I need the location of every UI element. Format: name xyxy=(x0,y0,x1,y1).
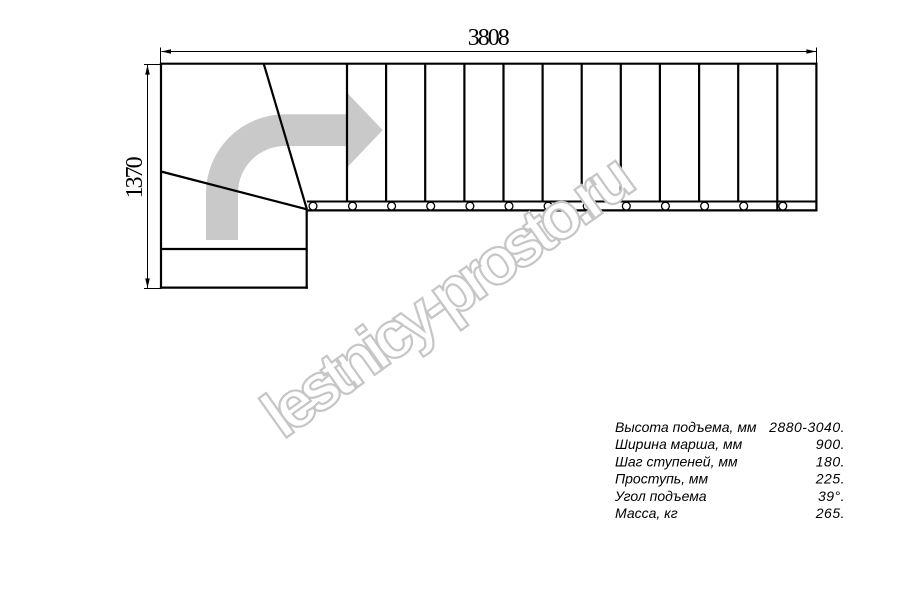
svg-text:180.: 180. xyxy=(816,453,845,469)
svg-text:265.: 265. xyxy=(815,505,845,521)
svg-text:Проступь, мм: Проступь, мм xyxy=(615,471,709,487)
svg-text:39°.: 39°. xyxy=(818,488,845,504)
svg-text:225.: 225. xyxy=(815,471,845,487)
svg-text:900.: 900. xyxy=(816,436,845,452)
svg-text:Угол подъема: Угол подъема xyxy=(614,488,707,504)
svg-text:Масса, кг: Масса, кг xyxy=(615,505,678,521)
svg-text:Ширина марша, мм: Ширина марша, мм xyxy=(615,436,743,452)
svg-text:3808: 3808 xyxy=(468,25,510,51)
svg-text:2880-3040.: 2880-3040. xyxy=(768,419,845,435)
svg-text:Шаг ступеней, мм: Шаг ступеней, мм xyxy=(615,453,738,469)
svg-text:1370: 1370 xyxy=(122,156,148,198)
svg-text:Высота подъема, мм: Высота подъема, мм xyxy=(615,419,757,435)
